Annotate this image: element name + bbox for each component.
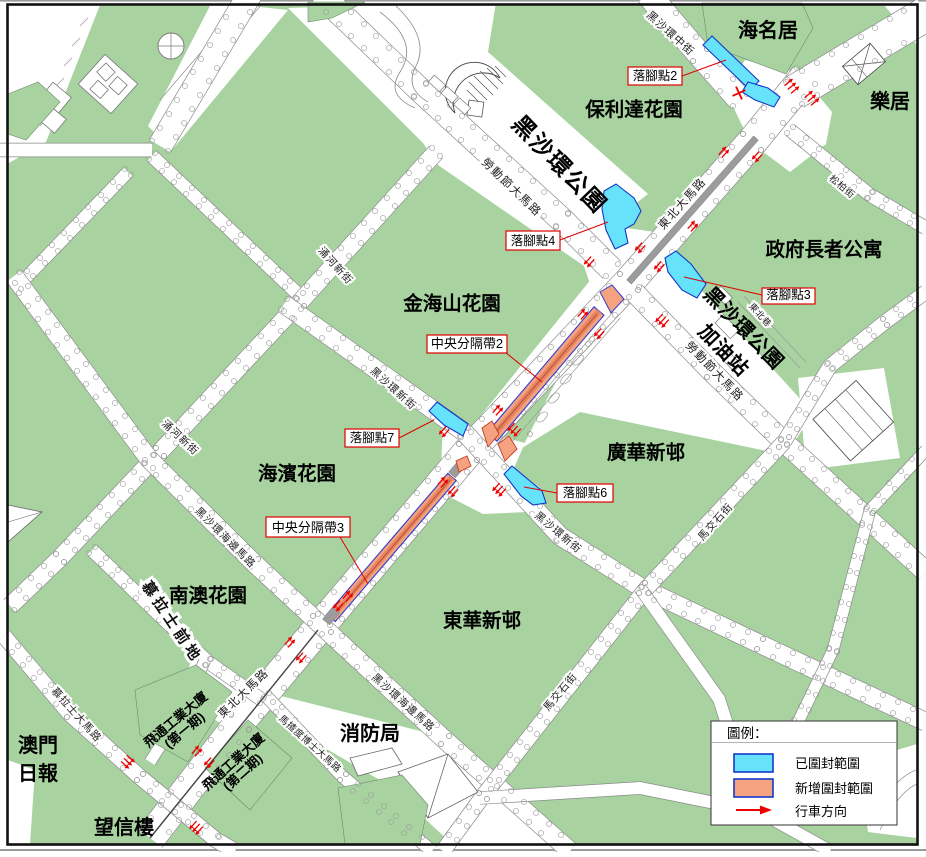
svg-text:圖例：: 圖例： — [727, 726, 768, 741]
svg-text:澳門: 澳門 — [18, 733, 58, 757]
svg-text:南澳花園: 南澳花園 — [169, 584, 247, 607]
svg-text:望信樓: 望信樓 — [94, 815, 154, 839]
svg-text:日報: 日報 — [18, 762, 59, 785]
svg-text:中央分隔帶2: 中央分隔帶2 — [431, 336, 503, 351]
svg-text:消防局: 消防局 — [340, 721, 400, 745]
svg-text:落腳點3: 落腳點3 — [766, 288, 811, 302]
svg-text:保利達花園: 保利達花園 — [584, 98, 683, 121]
svg-text:已圍封範圍: 已圍封範圍 — [795, 756, 860, 771]
svg-text:落腳點6: 落腳點6 — [563, 486, 608, 500]
svg-text:落腳點2: 落腳點2 — [633, 69, 678, 83]
svg-text:中央分隔帶3: 中央分隔帶3 — [272, 520, 344, 535]
svg-text:落腳點4: 落腳點4 — [511, 234, 556, 248]
svg-text:海濱花園: 海濱花園 — [258, 462, 336, 485]
svg-text:落腳點7: 落腳點7 — [350, 431, 395, 445]
svg-text:樂居: 樂居 — [870, 89, 910, 113]
svg-text:政府長者公寓: 政府長者公寓 — [765, 238, 882, 261]
svg-text:新增圍封範圍: 新增圍封範圍 — [795, 781, 873, 796]
svg-text:金海山花園: 金海山花園 — [402, 292, 501, 315]
svg-text:行車方向: 行車方向 — [795, 804, 847, 819]
svg-text:東華新邨: 東華新邨 — [443, 609, 522, 632]
svg-text:廣華新邨: 廣華新邨 — [607, 441, 686, 464]
svg-text:海名居: 海名居 — [738, 18, 798, 42]
